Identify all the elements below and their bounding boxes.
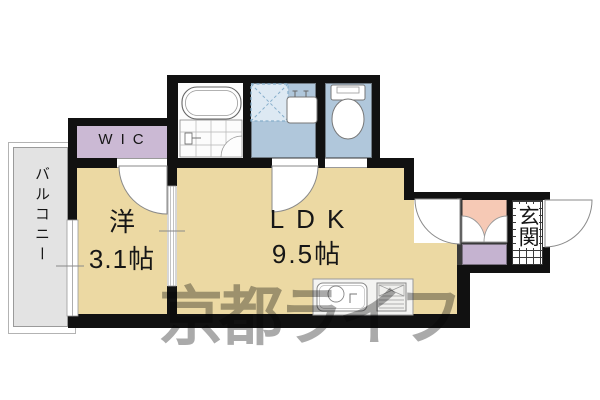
- front-door-arc: [545, 200, 592, 247]
- wic-label: WIC: [75, 131, 167, 148]
- washbasin-icon: [287, 91, 317, 123]
- western-room-size: 3.1帖: [77, 241, 167, 278]
- genkan-label: 玄関: [516, 204, 539, 248]
- washing-machine-space-icon: [251, 84, 288, 121]
- western-room-name: 洋: [77, 204, 167, 241]
- ldk-label: LDK 9.5帖: [240, 202, 374, 272]
- watermark-text: 京都ライフ: [159, 266, 459, 358]
- bifold-door-arcs: [462, 216, 507, 242]
- western-room-label: 洋 3.1帖: [77, 204, 167, 278]
- floorplan: WIC バルコニー 洋 3.1帖 LDK 9.5帖 玄関 京都ライフ: [0, 0, 600, 400]
- ldk-name: LDK: [240, 202, 374, 237]
- balcony-label: バルコニー: [31, 166, 52, 316]
- bath-tile-floor: [180, 120, 242, 157]
- hall-door-arc: [415, 199, 460, 244]
- toilet-icon: [331, 85, 365, 139]
- bathtub-icon: [182, 87, 241, 119]
